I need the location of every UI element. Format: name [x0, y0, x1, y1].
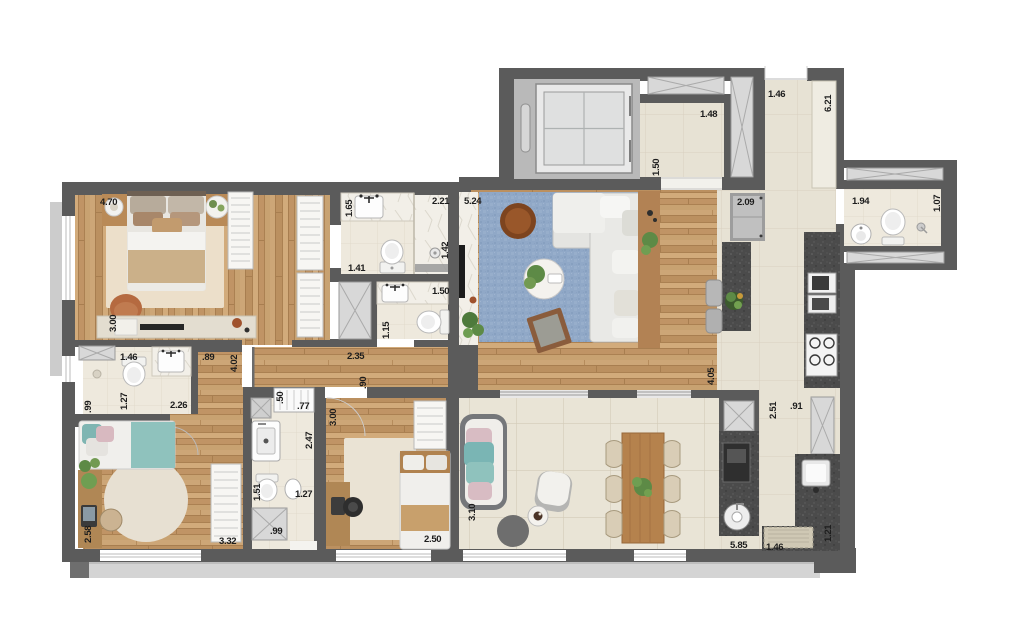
svg-text:.99: .99: [270, 526, 282, 537]
svg-text:1.21: 1.21: [823, 524, 834, 542]
svg-text:1.94: 1.94: [852, 196, 870, 207]
svg-text:4.70: 4.70: [100, 197, 117, 208]
svg-text:1.51: 1.51: [252, 483, 263, 501]
svg-text:2.09: 2.09: [737, 197, 754, 208]
svg-text:1.46: 1.46: [766, 542, 783, 553]
svg-text:4.02: 4.02: [229, 355, 240, 372]
svg-text:1.46: 1.46: [120, 352, 137, 363]
svg-text:3.32: 3.32: [219, 536, 236, 547]
svg-text:.77: .77: [297, 401, 309, 412]
svg-text:5.24: 5.24: [464, 196, 482, 207]
svg-text:1.41: 1.41: [348, 263, 366, 274]
svg-text:.99: .99: [83, 401, 94, 413]
svg-text:2.58: 2.58: [83, 526, 94, 543]
svg-text:.89: .89: [202, 352, 214, 363]
svg-text:2.21: 2.21: [432, 196, 450, 207]
svg-text:3.00: 3.00: [108, 315, 119, 332]
svg-text:2.51: 2.51: [768, 401, 779, 419]
svg-text:1.65: 1.65: [344, 199, 355, 217]
svg-text:1.27: 1.27: [119, 393, 130, 410]
svg-text:1.07: 1.07: [932, 195, 943, 212]
svg-text:6.21: 6.21: [823, 94, 834, 112]
svg-text:5.85: 5.85: [730, 540, 748, 551]
svg-text:1.46: 1.46: [768, 89, 785, 100]
svg-text:2.50: 2.50: [424, 534, 441, 545]
svg-text:1.48: 1.48: [700, 109, 717, 120]
svg-text:1.15: 1.15: [381, 321, 392, 339]
svg-text:1.50: 1.50: [432, 286, 449, 297]
svg-text:1.27: 1.27: [295, 489, 312, 500]
svg-text:4.05: 4.05: [706, 367, 717, 385]
svg-text:3.00: 3.00: [328, 409, 339, 426]
svg-text:.90: .90: [358, 377, 369, 389]
svg-text:.91: .91: [790, 401, 803, 412]
svg-text:3.10: 3.10: [467, 504, 478, 521]
svg-text:2.35: 2.35: [347, 351, 365, 362]
svg-text:.50: .50: [275, 392, 286, 404]
svg-text:1.42: 1.42: [440, 242, 451, 259]
svg-text:2.47: 2.47: [304, 432, 315, 449]
svg-text:2.26: 2.26: [170, 400, 187, 411]
svg-text:1.50: 1.50: [651, 159, 662, 176]
